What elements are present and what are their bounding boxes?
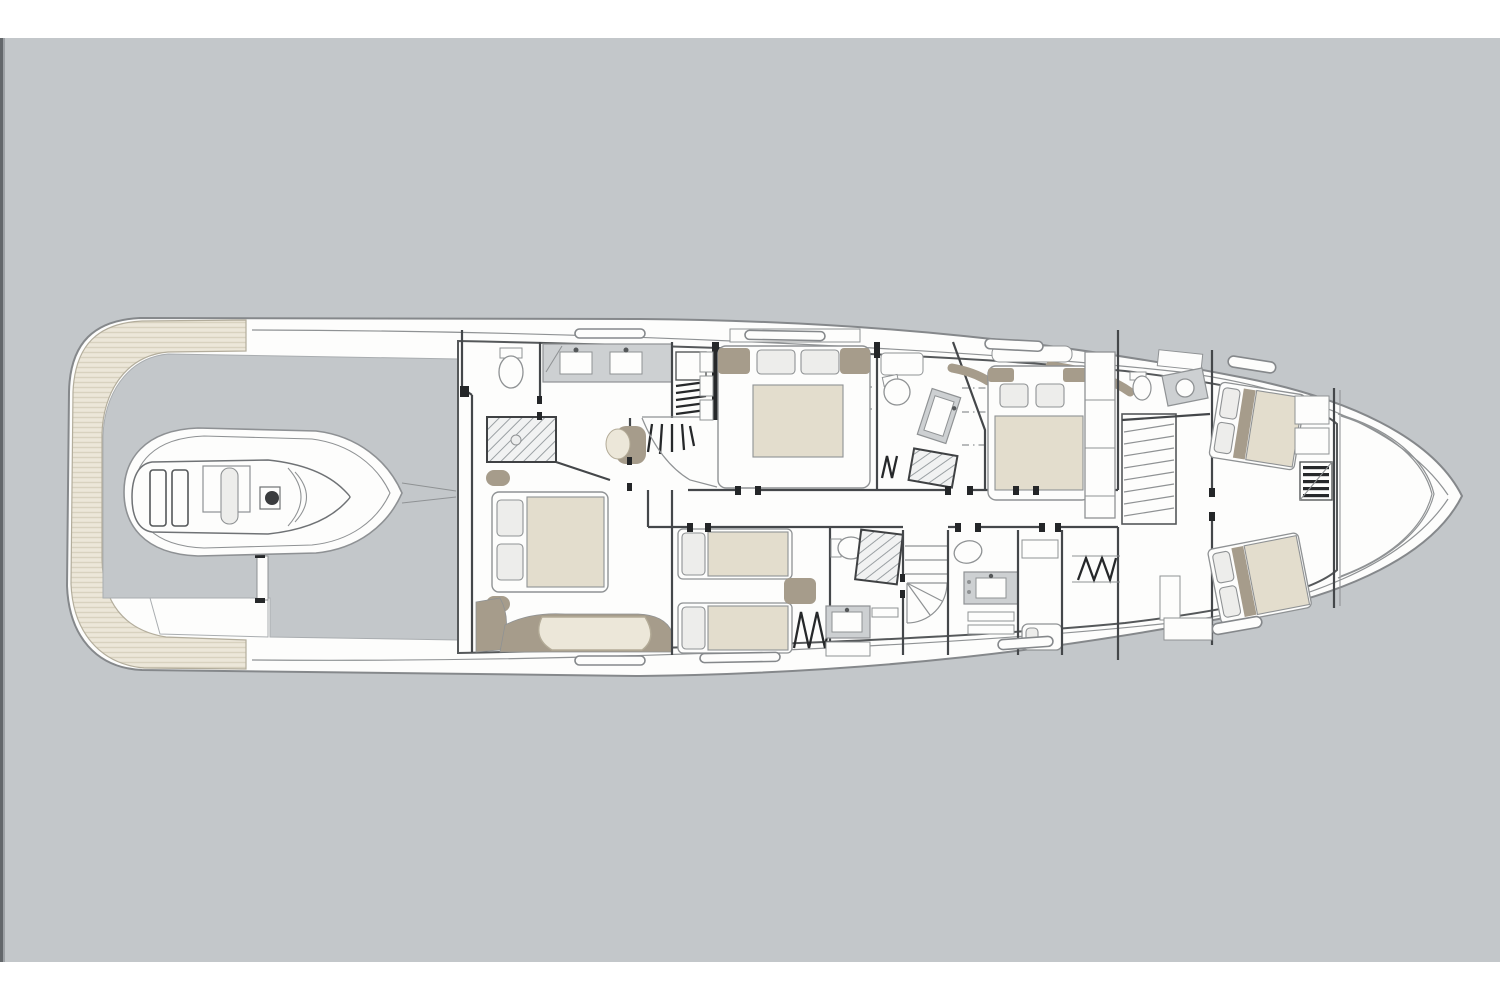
shower-tray	[487, 417, 556, 462]
shelf	[968, 612, 1014, 621]
handle	[967, 590, 971, 594]
hull-window-bottom	[575, 656, 645, 665]
toilet-icon	[884, 379, 910, 405]
hull-window-top	[985, 338, 1043, 351]
pillow	[1036, 384, 1064, 407]
tender-steering-wheel	[265, 491, 279, 505]
lower-deck-plan	[0, 0, 1500, 1000]
pillow	[682, 533, 705, 575]
sofa-seat	[539, 617, 651, 650]
headboard-end	[840, 348, 870, 374]
companionway-stairs	[1122, 414, 1176, 524]
nightstand	[784, 578, 816, 604]
cabinet	[881, 353, 923, 375]
pillow	[682, 607, 705, 649]
garage-side-door	[257, 556, 268, 600]
twin-bed-1	[678, 529, 792, 579]
sink-icon	[832, 612, 862, 632]
aft-deck	[103, 354, 458, 640]
master-vanity	[543, 344, 672, 382]
shelf	[872, 608, 898, 617]
shelf	[968, 625, 1014, 634]
pillow	[801, 350, 839, 374]
hull-window-top	[575, 329, 645, 338]
pillow	[1000, 384, 1028, 407]
duvet	[995, 416, 1083, 490]
crew-berth-upper	[1209, 382, 1306, 471]
pillow	[757, 350, 795, 374]
left-edge-strip	[0, 38, 3, 962]
shower-tray	[855, 530, 903, 585]
double-bed	[718, 346, 870, 488]
screenshot-stage	[0, 0, 1500, 1000]
twin-bed-2	[678, 603, 792, 653]
beach-area	[150, 598, 268, 637]
round-basin-icon	[1176, 379, 1194, 397]
mattress	[708, 606, 788, 650]
headboard-end	[988, 368, 1014, 382]
faucet-icon	[624, 348, 629, 353]
left-edge-strip-highlight	[3, 38, 5, 962]
hull-window-bottom	[700, 652, 780, 662]
faucet-icon	[845, 608, 849, 612]
ottoman	[486, 470, 510, 486]
guest-cabin-double	[700, 329, 877, 490]
shower	[909, 448, 958, 487]
tender-step-port	[150, 470, 166, 526]
pillow	[497, 544, 523, 580]
sink-icon	[976, 578, 1006, 598]
wardrobe-shelves	[700, 352, 713, 420]
sink-icon	[560, 352, 592, 374]
shower-tray	[909, 448, 958, 487]
bench	[826, 642, 870, 656]
duvet	[753, 385, 843, 457]
headboard-end	[718, 348, 750, 374]
sink-icon	[610, 352, 642, 374]
tender-seat	[221, 468, 238, 524]
cabinet	[1022, 540, 1058, 558]
faucet-icon	[574, 348, 579, 353]
wardrobe-column	[1085, 352, 1115, 518]
master-sofa	[500, 614, 672, 652]
faucet-icon	[989, 574, 993, 578]
door-jamb	[255, 598, 265, 603]
shower-drain-icon	[511, 435, 521, 445]
tender-step-stbd	[172, 470, 188, 526]
basin-vanity	[826, 606, 870, 638]
toilet-icon	[499, 356, 523, 388]
basin-vanity	[964, 572, 1018, 604]
toilet-icon	[1133, 376, 1151, 400]
master-bed	[492, 492, 608, 592]
shower	[855, 530, 903, 585]
crew-ladder	[1300, 462, 1332, 500]
duvet	[527, 497, 604, 587]
handle	[967, 580, 971, 584]
mattress	[708, 532, 788, 576]
hull-window-top	[745, 330, 825, 340]
armchair-cushion	[606, 429, 630, 459]
pillow	[497, 500, 523, 536]
vip-bed	[988, 366, 1090, 500]
